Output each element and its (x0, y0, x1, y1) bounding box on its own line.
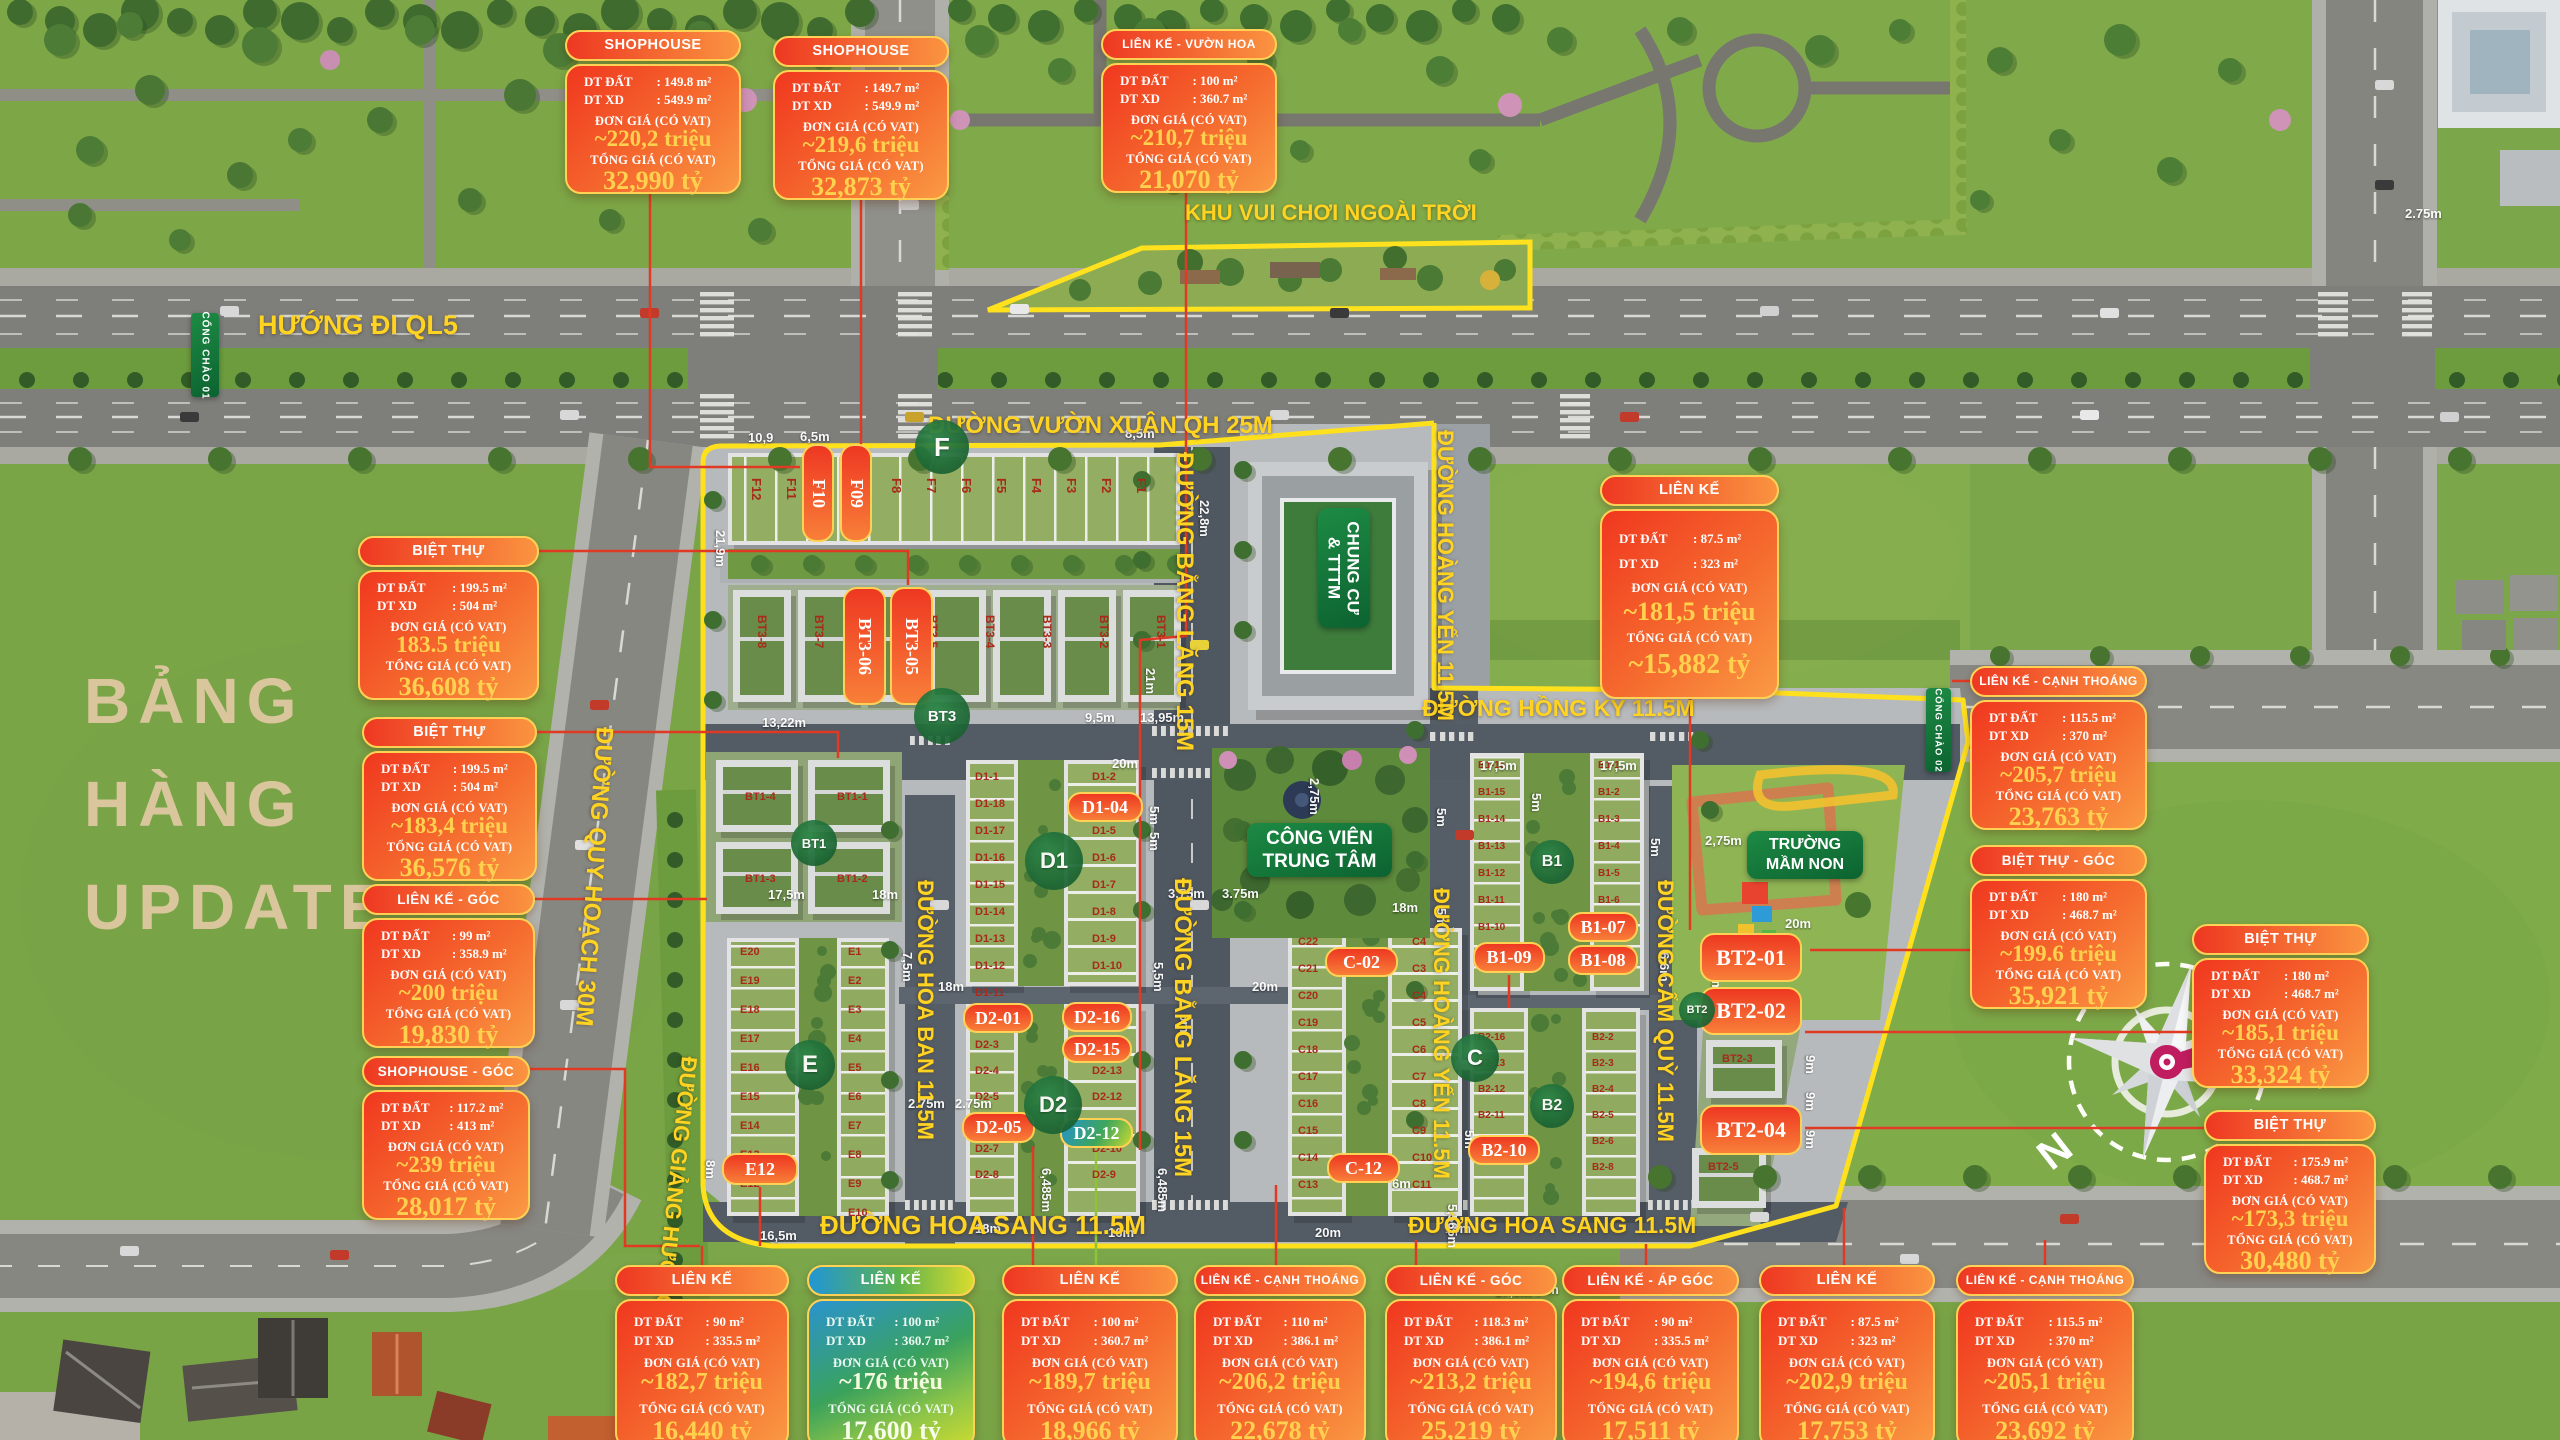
svg-text:B1-2: B1-2 (1598, 787, 1620, 798)
svg-text:B1-14: B1-14 (1478, 814, 1506, 825)
svg-text:5,5m: 5,5m (1151, 962, 1166, 992)
svg-text:E14: E14 (740, 1120, 760, 1132)
svg-text:BT1-3: BT1-3 (745, 873, 776, 885)
svg-text:9m: 9m (1803, 1092, 1818, 1111)
svg-text:E3: E3 (848, 1004, 861, 1016)
svg-text:B2-2: B2-2 (1592, 1032, 1614, 1043)
svg-text:D1-18: D1-18 (975, 798, 1005, 810)
svg-text:C11: C11 (1412, 1179, 1432, 1191)
svg-text:C4: C4 (1412, 936, 1427, 948)
svg-text:C15: C15 (1298, 1125, 1318, 1137)
svg-text:21,9m: 21,9m (713, 530, 728, 567)
svg-text:C4: C4 (1412, 990, 1427, 1002)
svg-text:17,5m: 17,5m (1600, 758, 1637, 773)
svg-text:E9: E9 (848, 1178, 861, 1190)
svg-text:B1-10: B1-10 (1478, 922, 1506, 933)
svg-text:BT3-2: BT3-2 (1097, 615, 1111, 649)
svg-text:C19: C19 (1298, 1017, 1318, 1029)
svg-text:F4: F4 (1029, 478, 1044, 494)
svg-text:E16: E16 (740, 1062, 760, 1074)
svg-text:F11: F11 (784, 478, 799, 500)
svg-text:D2-9: D2-9 (1092, 1169, 1116, 1181)
svg-text:5m: 5m (1648, 838, 1663, 857)
svg-text:9m: 9m (1803, 1055, 1818, 1074)
svg-text:C6: C6 (1412, 1044, 1426, 1056)
svg-text:20m: 20m (1252, 979, 1278, 994)
svg-text:D2-12: D2-12 (1092, 1091, 1122, 1103)
svg-text:C7: C7 (1412, 1071, 1426, 1083)
svg-text:18m: 18m (1392, 900, 1418, 915)
svg-text:C5: C5 (1412, 1017, 1426, 1029)
svg-text:B1-12: B1-12 (1478, 868, 1506, 879)
svg-text:D1-16: D1-16 (975, 852, 1005, 864)
svg-text:B1-4: B1-4 (1598, 841, 1620, 852)
svg-text:D1-17: D1-17 (975, 825, 1005, 837)
svg-text:F7: F7 (924, 478, 939, 493)
svg-text:D1-13: D1-13 (975, 933, 1005, 945)
svg-text:E15: E15 (740, 1091, 760, 1103)
svg-text:E8: E8 (848, 1149, 861, 1161)
svg-text:B1-5: B1-5 (1598, 868, 1620, 879)
svg-text:BT3-4: BT3-4 (983, 615, 997, 649)
svg-text:13,22m: 13,22m (762, 715, 806, 730)
svg-text:BT1-2: BT1-2 (837, 873, 868, 885)
svg-text:C9: C9 (1412, 1125, 1426, 1137)
svg-text:6,485m: 6,485m (1039, 1168, 1054, 1212)
svg-text:9m: 9m (1803, 1130, 1818, 1149)
svg-text:B2-5: B2-5 (1592, 1110, 1614, 1121)
svg-text:2,75m: 2,75m (1705, 833, 1742, 848)
svg-text:E20: E20 (740, 946, 760, 958)
svg-text:BT3-1: BT3-1 (1154, 615, 1168, 649)
svg-text:D2-4: D2-4 (975, 1065, 1000, 1077)
svg-text:D1-6: D1-6 (1092, 852, 1116, 864)
svg-text:BT3-8: BT3-8 (755, 615, 769, 649)
svg-text:BT1-4: BT1-4 (745, 791, 776, 803)
svg-text:D2-3: D2-3 (975, 1039, 999, 1051)
svg-text:D1-9: D1-9 (1092, 933, 1116, 945)
svg-text:18m: 18m (872, 887, 898, 902)
svg-text:21m: 21m (1143, 668, 1158, 694)
svg-text:F8: F8 (889, 478, 904, 493)
svg-text:BT3-3: BT3-3 (1040, 615, 1054, 649)
svg-text:5m: 5m (1529, 793, 1544, 812)
svg-text:5m: 5m (1147, 806, 1162, 825)
svg-text:C17: C17 (1298, 1071, 1318, 1083)
svg-text:F2: F2 (1099, 478, 1114, 493)
svg-text:E7: E7 (848, 1120, 861, 1132)
svg-text:18m: 18m (938, 979, 964, 994)
svg-text:C16: C16 (1298, 1098, 1318, 1110)
svg-text:D1-14: D1-14 (975, 906, 1006, 918)
svg-text:6,5m: 6,5m (800, 429, 830, 444)
svg-text:E2: E2 (848, 975, 861, 987)
svg-text:5m: 5m (1147, 832, 1162, 851)
svg-text:22,8m: 22,8m (1197, 500, 1212, 537)
svg-text:D1-15: D1-15 (975, 879, 1005, 891)
svg-text:BT1-1: BT1-1 (837, 791, 868, 803)
svg-text:20m: 20m (1315, 1225, 1341, 1240)
svg-text:C3: C3 (1412, 963, 1426, 975)
svg-text:B2-8: B2-8 (1592, 1162, 1614, 1173)
svg-text:F5: F5 (994, 478, 1009, 493)
svg-text:B1-13: B1-13 (1478, 841, 1506, 852)
svg-text:E6: E6 (848, 1091, 861, 1103)
svg-text:BT2-5: BT2-5 (1708, 1161, 1739, 1173)
svg-text:F6: F6 (959, 478, 974, 493)
svg-text:B1-6: B1-6 (1598, 895, 1620, 906)
svg-text:B2-3: B2-3 (1592, 1058, 1614, 1069)
svg-text:C22: C22 (1298, 936, 1318, 948)
svg-text:10,9: 10,9 (748, 430, 773, 445)
svg-text:20m: 20m (1785, 916, 1811, 931)
svg-text:E4: E4 (848, 1033, 862, 1045)
svg-text:E17: E17 (740, 1033, 760, 1045)
svg-text:C18: C18 (1298, 1044, 1318, 1056)
svg-text:C20: C20 (1298, 990, 1318, 1002)
svg-text:8m: 8m (703, 1160, 718, 1179)
svg-text:2,75m: 2,75m (1307, 778, 1322, 815)
svg-text:17,5m: 17,5m (768, 887, 805, 902)
svg-text:B2-6: B2-6 (1592, 1136, 1614, 1147)
svg-text:D2-13: D2-13 (1092, 1065, 1122, 1077)
svg-text:E18: E18 (740, 1004, 760, 1016)
svg-text:BT2-3: BT2-3 (1722, 1053, 1753, 1065)
svg-text:D2-8: D2-8 (975, 1169, 999, 1181)
svg-text:B2-11: B2-11 (1478, 1110, 1505, 1121)
svg-text:5m: 5m (1434, 808, 1449, 827)
svg-text:D1-2: D1-2 (1092, 771, 1116, 783)
svg-text:D1-12: D1-12 (975, 960, 1005, 972)
svg-text:D2-7: D2-7 (975, 1143, 999, 1155)
svg-text:D1-5: D1-5 (1092, 825, 1116, 837)
svg-text:16,5m: 16,5m (760, 1228, 797, 1243)
svg-text:C13: C13 (1298, 1179, 1318, 1191)
svg-text:20m: 20m (1112, 756, 1138, 771)
svg-text:D1-7: D1-7 (1092, 879, 1116, 891)
svg-text:F1: F1 (1134, 478, 1149, 493)
svg-text:F12: F12 (749, 478, 764, 500)
svg-text:17,5m: 17,5m (1480, 758, 1517, 773)
svg-text:B1-15: B1-15 (1478, 787, 1506, 798)
svg-text:E1: E1 (848, 946, 861, 958)
svg-text:E19: E19 (740, 975, 760, 987)
svg-text:B2-4: B2-4 (1592, 1084, 1614, 1095)
svg-text:D1-10: D1-10 (1092, 960, 1122, 972)
svg-text:B1-3: B1-3 (1598, 814, 1620, 825)
svg-text:B2-12: B2-12 (1478, 1084, 1506, 1095)
svg-text:C14: C14 (1298, 1152, 1319, 1164)
svg-text:B1-11: B1-11 (1478, 895, 1505, 906)
svg-text:3.75m: 3.75m (1222, 886, 1259, 901)
svg-text:F3: F3 (1064, 478, 1079, 493)
svg-text:D1-1: D1-1 (975, 771, 999, 783)
svg-text:C21: C21 (1298, 963, 1318, 975)
svg-text:D1-11: D1-11 (975, 987, 1004, 999)
svg-text:2.75m: 2.75m (2405, 206, 2442, 221)
svg-text:C8: C8 (1412, 1098, 1426, 1110)
svg-text:9,5m: 9,5m (1085, 710, 1115, 725)
svg-text:D1-8: D1-8 (1092, 906, 1116, 918)
svg-text:E5: E5 (848, 1062, 861, 1074)
svg-text:2.75m: 2.75m (955, 1096, 992, 1111)
svg-text:BT3-7: BT3-7 (812, 615, 826, 649)
